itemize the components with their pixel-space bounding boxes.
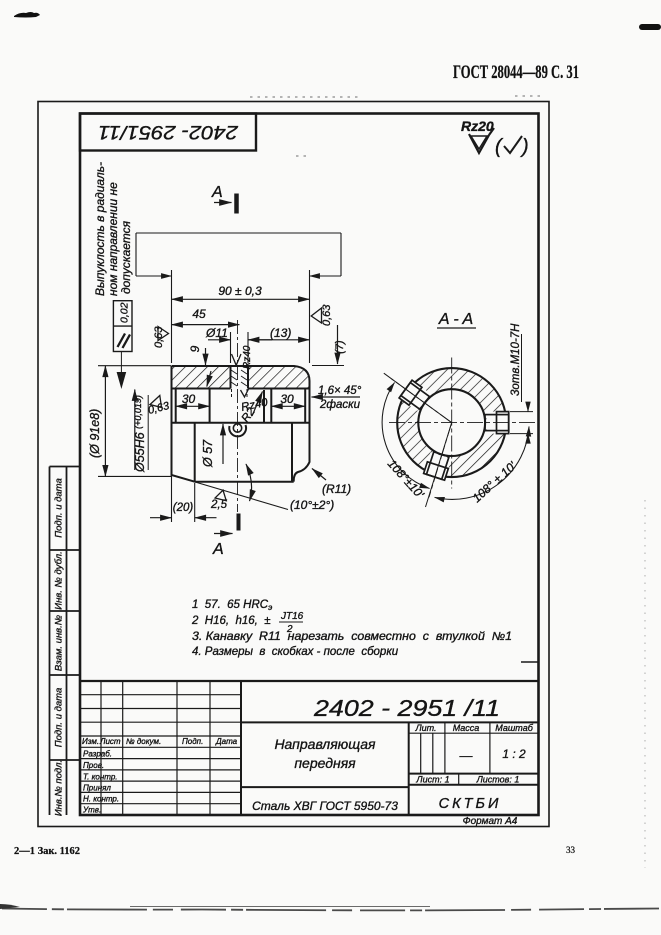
svg-text:Rz40: Rz40: [242, 345, 253, 369]
svg-text:(20): (20): [173, 502, 194, 514]
svg-text:Подп.: Подп.: [182, 737, 203, 746]
svg-text:(7): (7): [334, 340, 346, 354]
svg-text:Лит.: Лит.: [414, 723, 436, 733]
svg-text:1 : 2: 1 : 2: [502, 747, 526, 761]
svg-text:Масса: Масса: [453, 723, 480, 733]
svg-text:Взам. инв.№: Взам. инв.№: [54, 615, 65, 671]
svg-text:A: A: [211, 184, 223, 201]
svg-text:—: —: [459, 748, 474, 763]
svg-text:№ докум.: № докум.: [126, 737, 161, 746]
svg-text:Подп. и дата: Подп. и дата: [54, 688, 65, 747]
svg-text:Лист: Лист: [99, 737, 121, 746]
svg-text:Направляющая: Направляющая: [274, 736, 376, 752]
svg-text:2402- 2951/11: 2402- 2951/11: [98, 121, 239, 143]
svg-text:33: 33: [566, 845, 576, 855]
svg-text:Лист: 1: Лист: 1: [415, 775, 449, 785]
svg-text:Т. контр.: Т. контр.: [83, 773, 118, 782]
svg-text:допускается: допускается: [119, 220, 133, 294]
svg-text:45: 45: [192, 307, 206, 321]
svg-text:Н. контр.: Н. контр.: [83, 795, 119, 804]
svg-text:СКТБИ: СКТБИ: [439, 796, 502, 812]
svg-text:Rz20: Rz20: [461, 118, 494, 134]
svg-text:30: 30: [280, 392, 294, 406]
svg-text:передняя: передняя: [294, 755, 356, 771]
svg-text:(: (: [495, 136, 504, 158]
svg-text:1 57. 65 HRCэ: 1 57. 65 HRCэ: [192, 599, 272, 612]
svg-text:): ): [520, 136, 529, 158]
svg-text:Инв. № дубл.: Инв. № дубл.: [54, 551, 65, 609]
svg-text:(Ø 91е8): (Ø 91е8): [88, 409, 102, 458]
svg-text:Разраб.: Разраб.: [83, 750, 112, 759]
svg-text:2402 - 2951 /11: 2402 - 2951 /11: [313, 695, 500, 721]
svg-text:(R11): (R11): [322, 482, 351, 496]
svg-text:Изм.: Изм.: [82, 737, 99, 746]
svg-text:3. Канавку R11 нарезать сов: 3. Канавку R11 нарезать совместно с втул…: [192, 631, 512, 643]
svg-text:(13): (13): [270, 326, 291, 340]
svg-text:3отв.М10-7Н: 3отв.М10-7Н: [510, 323, 522, 396]
svg-text:0,63: 0,63: [321, 304, 333, 326]
svg-text:4. Размеры в скобках - после: 4. Размеры в скобках - после сборки: [192, 646, 399, 658]
svg-text:Принял: Принял: [83, 784, 111, 793]
svg-text:30: 30: [182, 392, 196, 406]
svg-text:90 ± 0,3: 90 ± 0,3: [218, 284, 262, 298]
svg-text:Маштаб: Маштаб: [495, 723, 533, 733]
svg-text:Пров.: Пров.: [83, 761, 104, 770]
svg-text:0,63: 0,63: [147, 400, 172, 417]
svg-text:Формат А4: Формат А4: [463, 816, 518, 827]
svg-text:(10°±2°): (10°±2°): [290, 498, 334, 512]
svg-text:Подп. и дата: Подп. и дата: [54, 478, 65, 537]
svg-text:Инв.№ подл.: Инв.№ подл.: [54, 760, 65, 816]
svg-text:2фаски: 2фаски: [319, 399, 361, 411]
svg-text:Выпуклость в радиаль-: Выпуклость в радиаль-: [93, 162, 107, 296]
svg-text:A - A: A - A: [438, 311, 473, 328]
svg-text:ном направлении не: ном направлении не: [106, 182, 120, 296]
svg-text:ЈТ16: ЈТ16: [280, 611, 304, 622]
svg-text:Ø55Н6 (+0,019): Ø55Н6 (+0,019): [133, 395, 147, 473]
svg-text:A: A: [212, 541, 224, 558]
svg-text:Дата: Дата: [215, 737, 238, 746]
svg-text:Сталь ХВГ ГОСТ 5950-73: Сталь ХВГ ГОСТ 5950-73: [252, 799, 398, 813]
svg-text:1,6× 45°: 1,6× 45°: [318, 385, 362, 397]
svg-text:Утв.: Утв.: [82, 806, 101, 815]
svg-text:Листов: 1: Листов: 1: [476, 775, 520, 785]
svg-text:0,02: 0,02: [119, 302, 131, 323]
svg-text:2 Н16, h16, ±: 2 Н16, h16, ±: [191, 615, 271, 627]
svg-text:ГОСТ 28044—89 С. 31: ГОСТ 28044—89 С. 31: [453, 63, 579, 83]
svg-text:Ø11: Ø11: [205, 326, 228, 340]
svg-text:9: 9: [188, 345, 202, 352]
svg-text:2—1 Зак. 1162: 2—1 Зак. 1162: [14, 846, 80, 857]
svg-text:Ø 57: Ø 57: [201, 439, 215, 468]
